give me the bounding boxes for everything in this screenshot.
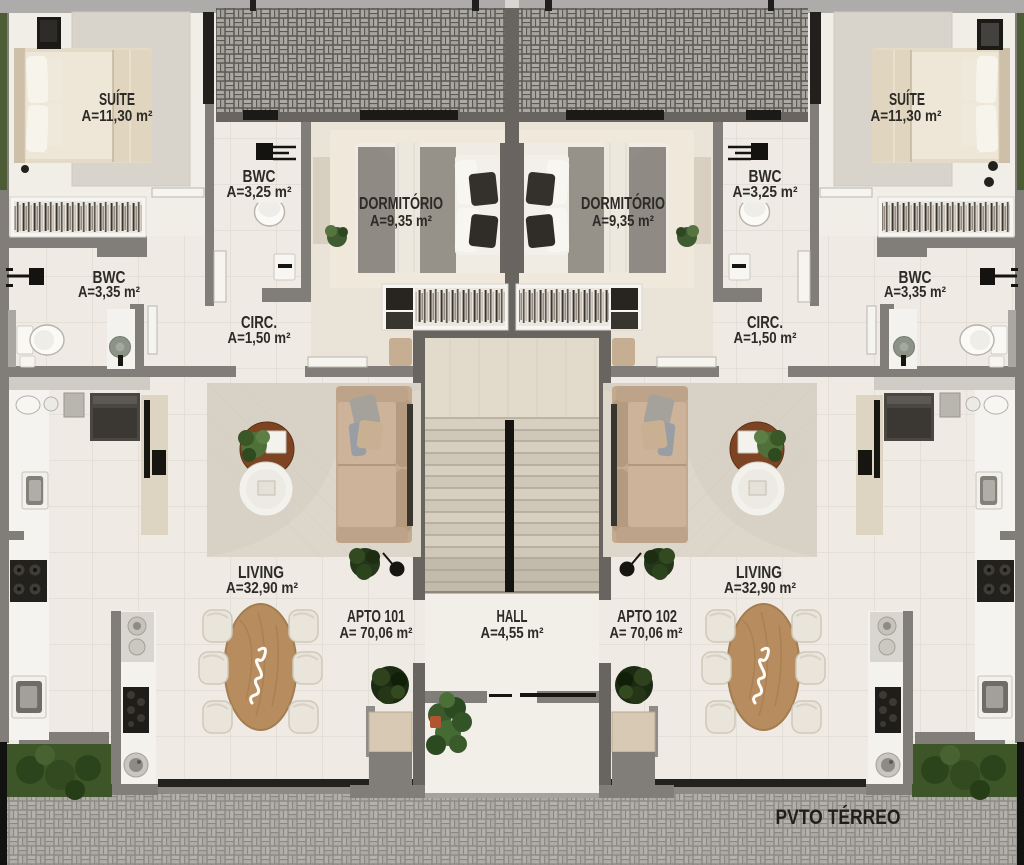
svg-text:HALL: HALL bbox=[497, 606, 528, 626]
svg-text:A=3,25 m²: A=3,25 m² bbox=[227, 184, 292, 201]
svg-text:DORMITÓRIO: DORMITÓRIO bbox=[359, 193, 443, 213]
svg-text:LIVING: LIVING bbox=[238, 562, 284, 582]
svg-text:A=3,35 m²: A=3,35 m² bbox=[78, 284, 140, 301]
svg-text:A=3,25 m²: A=3,25 m² bbox=[733, 184, 798, 201]
svg-text:A= 70,06 m²: A= 70,06 m² bbox=[610, 625, 683, 642]
svg-text:PVTO TÉRREO: PVTO TÉRREO bbox=[776, 804, 901, 829]
svg-text:A= 70,06 m²: A= 70,06 m² bbox=[340, 625, 413, 642]
svg-text:APTO 101: APTO 101 bbox=[347, 606, 405, 626]
svg-text:A=11,30 m²: A=11,30 m² bbox=[82, 108, 153, 125]
svg-text:BWC: BWC bbox=[749, 166, 782, 186]
svg-text:A=32,90 m²: A=32,90 m² bbox=[724, 580, 796, 597]
svg-text:A=1,50 m²: A=1,50 m² bbox=[734, 330, 797, 347]
svg-text:A=9,35 m²: A=9,35 m² bbox=[370, 213, 432, 230]
svg-text:SUÍTE: SUÍTE bbox=[889, 89, 925, 109]
svg-text:SUÍTE: SUÍTE bbox=[99, 89, 135, 109]
svg-text:A=4,55 m²: A=4,55 m² bbox=[481, 625, 544, 642]
svg-text:DORMITÓRIO: DORMITÓRIO bbox=[581, 193, 665, 213]
svg-text:A=1,50 m²: A=1,50 m² bbox=[228, 330, 291, 347]
svg-text:A=9,35 m²: A=9,35 m² bbox=[592, 213, 654, 230]
svg-text:APTO 102: APTO 102 bbox=[617, 606, 677, 626]
svg-text:LIVING: LIVING bbox=[736, 562, 782, 582]
svg-text:A=3,35 m²: A=3,35 m² bbox=[884, 284, 946, 301]
svg-text:A=32,90 m²: A=32,90 m² bbox=[226, 580, 298, 597]
svg-text:A=11,30 m²: A=11,30 m² bbox=[871, 108, 942, 125]
svg-text:CIRC.: CIRC. bbox=[241, 312, 277, 332]
svg-text:CIRC.: CIRC. bbox=[747, 312, 783, 332]
svg-text:BWC: BWC bbox=[243, 166, 276, 186]
